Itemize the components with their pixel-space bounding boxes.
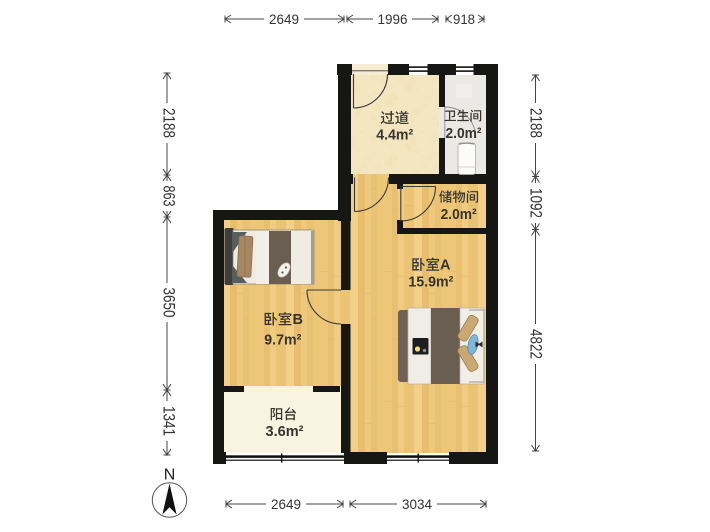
svg-text:1341: 1341 xyxy=(160,406,178,436)
svg-text:9.7m²: 9.7m² xyxy=(264,331,301,348)
svg-text:918: 918 xyxy=(453,11,475,27)
svg-text:2649: 2649 xyxy=(271,496,301,512)
svg-text:N: N xyxy=(164,467,176,484)
svg-text:2.0m²: 2.0m² xyxy=(441,206,477,223)
svg-text:2649: 2649 xyxy=(269,11,299,27)
svg-text:4.4m²: 4.4m² xyxy=(376,127,413,144)
svg-text:15.9m²: 15.9m² xyxy=(408,274,453,291)
svg-text:1996: 1996 xyxy=(378,11,408,27)
svg-text:A: A xyxy=(440,258,451,274)
svg-text:2188: 2188 xyxy=(527,108,545,138)
svg-text:863: 863 xyxy=(160,186,178,207)
svg-text:3.6m²: 3.6m² xyxy=(266,423,304,440)
svg-text:3034: 3034 xyxy=(402,496,432,512)
svg-text:4822: 4822 xyxy=(527,329,545,359)
svg-text:1092: 1092 xyxy=(527,188,545,218)
svg-text:2188: 2188 xyxy=(160,108,178,138)
svg-text:B: B xyxy=(293,312,303,328)
svg-text:3650: 3650 xyxy=(160,288,178,318)
svg-text:2.0m²: 2.0m² xyxy=(446,125,482,142)
